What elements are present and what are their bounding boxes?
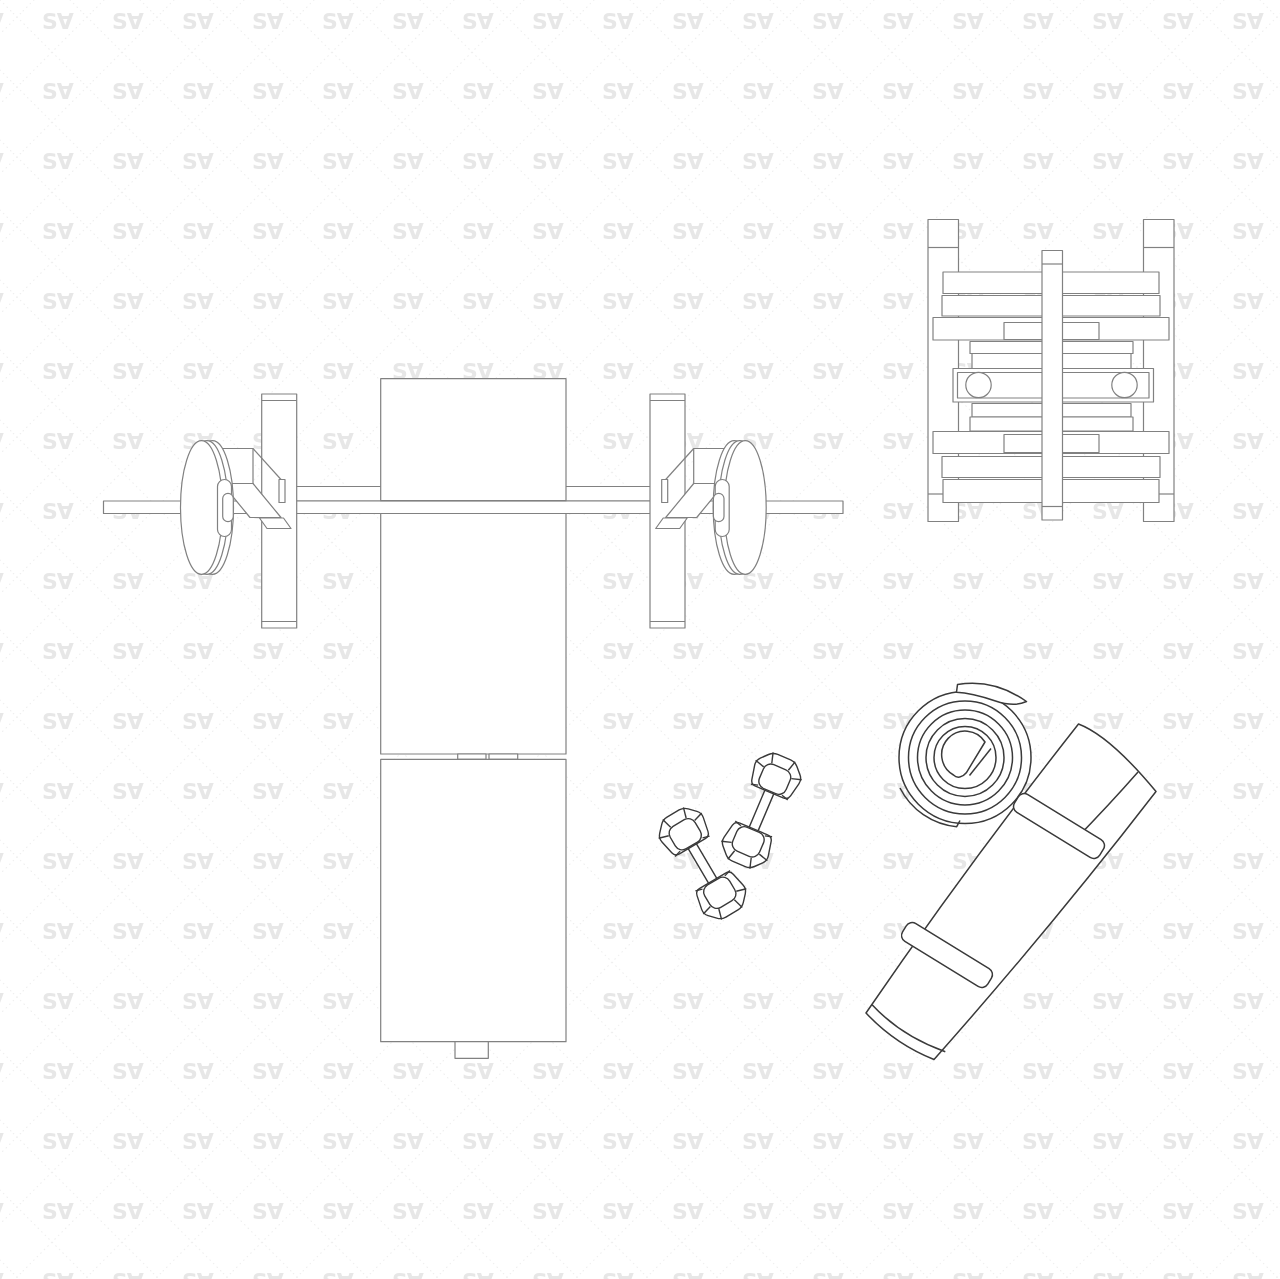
bench-hinge-tab — [458, 754, 486, 759]
cad-canvas: S∀ — [0, 0, 1280, 1279]
rack-center-bar — [1042, 251, 1063, 521]
bench-hinge-tab — [489, 754, 518, 759]
bench-head-pad — [381, 379, 566, 501]
bench-foot-tab — [455, 1042, 488, 1059]
rack-hole-right — [1112, 372, 1137, 397]
rack-hole-left — [966, 372, 991, 397]
watermark-pattern — [0, 0, 1280, 1279]
bench-pads — [381, 379, 566, 1059]
bench-middle-pad — [381, 514, 566, 755]
bench-bottom-pad — [381, 759, 566, 1041]
